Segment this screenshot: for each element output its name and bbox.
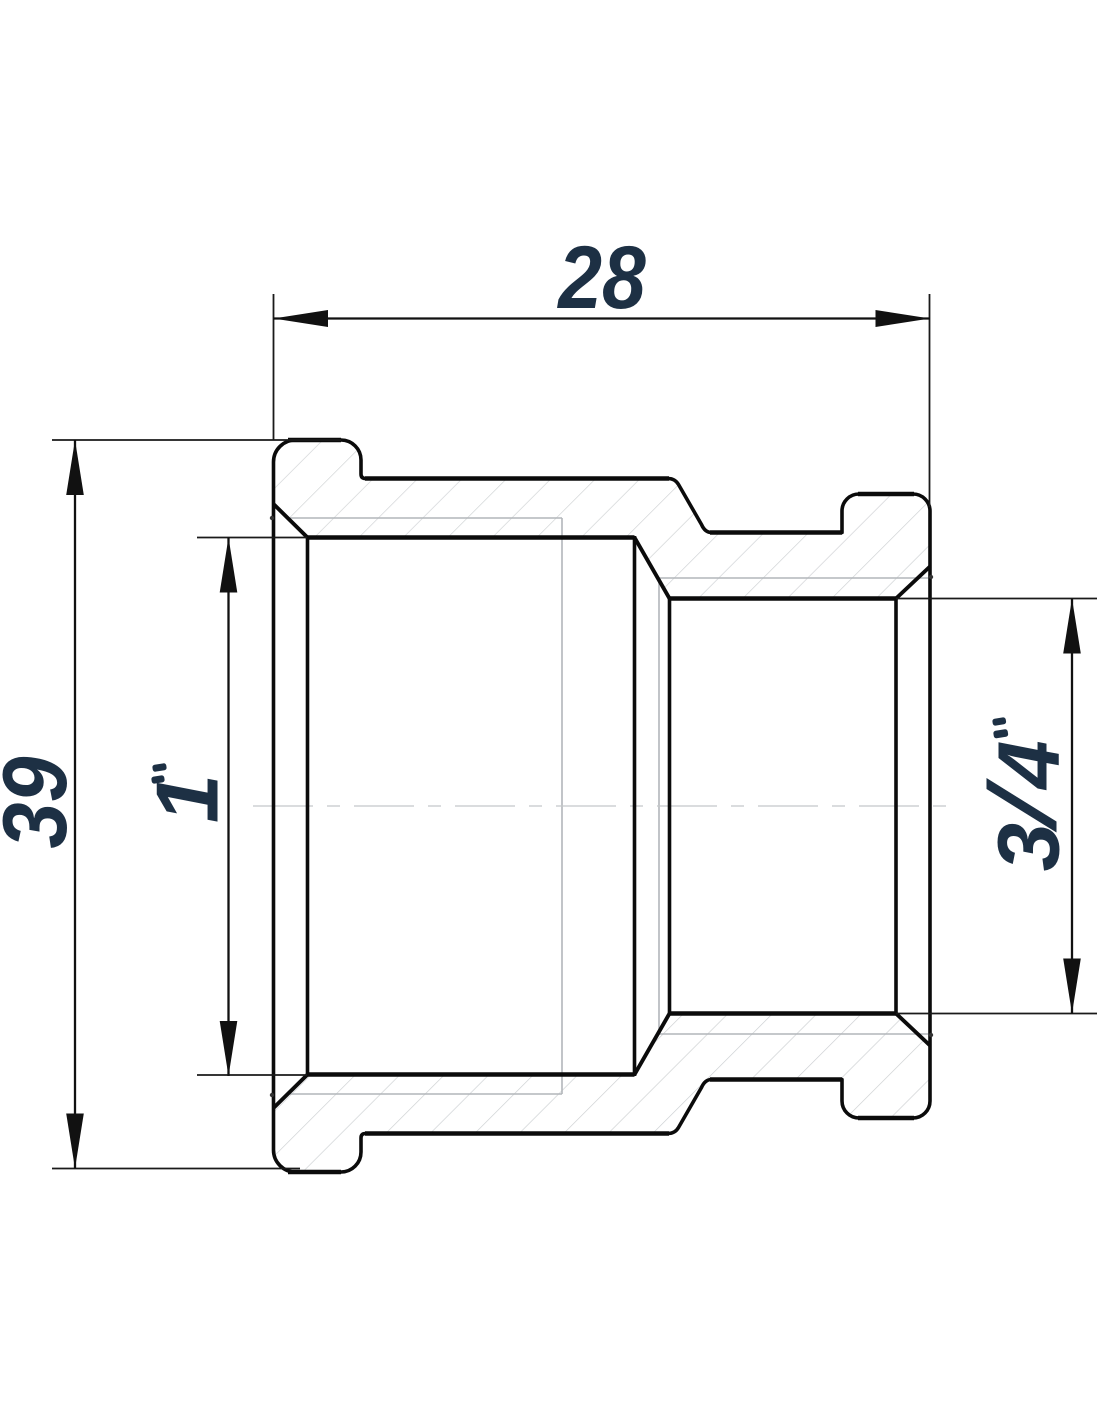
svg-text:39: 39 <box>0 756 86 848</box>
svg-text:4: 4 <box>981 740 1078 790</box>
svg-text:28: 28 <box>556 228 646 328</box>
svg-text:3: 3 <box>981 823 1078 871</box>
